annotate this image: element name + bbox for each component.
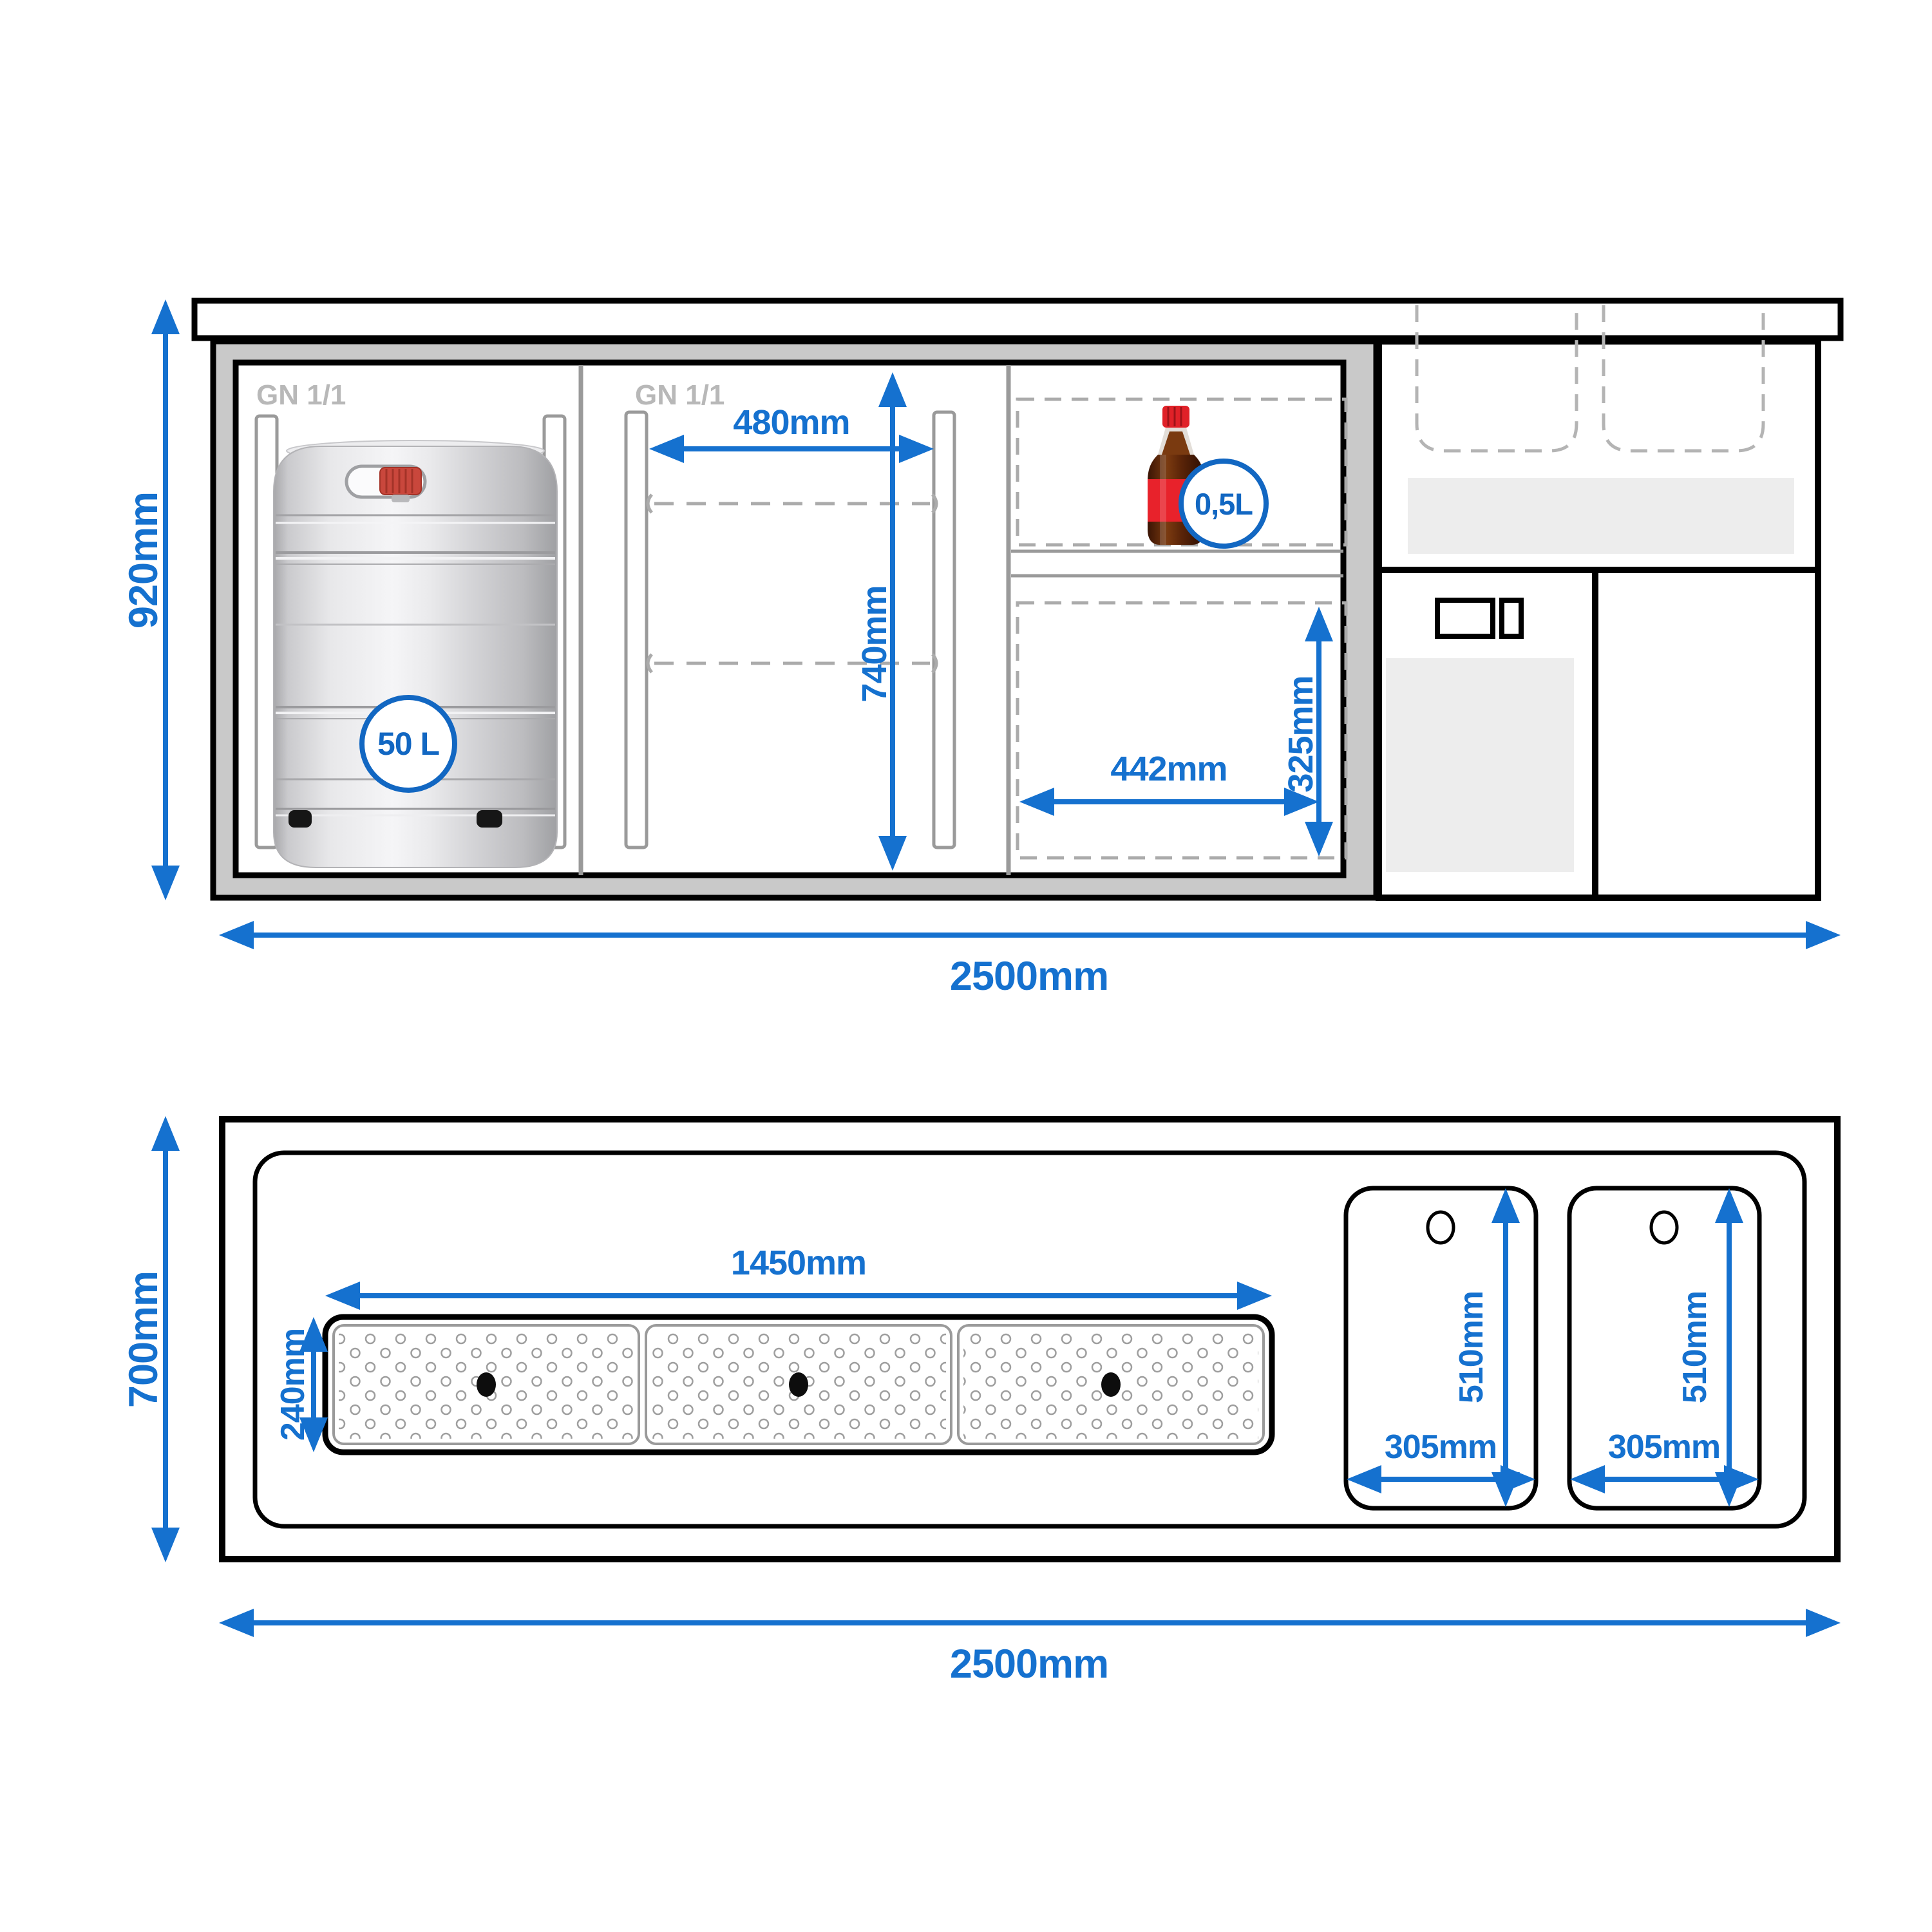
gn-label-left: GN 1/1 bbox=[256, 379, 346, 411]
keg-cooler-dimension-diagram: GN 1/1 GN 1/1 bbox=[0, 0, 1932, 1932]
faucet-hole bbox=[1651, 1212, 1677, 1243]
top-width-label: 2500mm bbox=[950, 1642, 1108, 1687]
top-depth-label: 700mm bbox=[121, 1271, 166, 1408]
control-display bbox=[1437, 600, 1493, 636]
dimension-700: 700mm bbox=[121, 1116, 180, 1562]
sink-unit-front bbox=[1379, 305, 1818, 898]
sink1-width-label: 305mm bbox=[1385, 1428, 1497, 1466]
drain-hole bbox=[477, 1372, 496, 1397]
drain-hole bbox=[1101, 1372, 1121, 1397]
bottle-capacity-badge: 0,5L bbox=[1181, 461, 1266, 546]
control-switch bbox=[1502, 600, 1521, 636]
gn-label-middle: GN 1/1 bbox=[635, 379, 724, 411]
drip-tray-depth-label: 240mm bbox=[274, 1329, 312, 1441]
diagram-canvas: GN 1/1 GN 1/1 bbox=[0, 0, 1932, 1932]
inner-height-label: 740mm bbox=[855, 585, 894, 702]
dimension-920: 920mm bbox=[121, 299, 180, 900]
dimension-2500-front: 2500mm bbox=[219, 921, 1841, 999]
sink2-width-label: 305mm bbox=[1608, 1428, 1720, 1466]
sink2-depth-label: 510mm bbox=[1676, 1291, 1714, 1403]
front-view: GN 1/1 GN 1/1 bbox=[121, 299, 1841, 999]
drip-tray bbox=[325, 1317, 1272, 1452]
keg-capacity-badge: 50 L bbox=[362, 697, 455, 790]
front-height-label: 920mm bbox=[121, 492, 166, 629]
drip-tray-width-label: 1450mm bbox=[731, 1244, 866, 1282]
top-view: 1450mm 240mm 510mm 305mm bbox=[121, 1116, 1841, 1687]
lower-shelf-height-label: 325mm bbox=[1282, 676, 1320, 792]
inner-width-label: 480mm bbox=[733, 403, 849, 442]
cabinet-door-panel bbox=[1386, 658, 1574, 872]
drain-hole bbox=[789, 1372, 808, 1397]
keg-capacity-label: 50 L bbox=[377, 726, 439, 762]
keg-illustration: 50 L bbox=[274, 440, 557, 867]
front-width-label: 2500mm bbox=[950, 954, 1108, 999]
drip-tray-panel-3 bbox=[958, 1325, 1264, 1444]
sink-plan-2: 510mm 305mm bbox=[1569, 1188, 1759, 1508]
drip-tray-panel-1 bbox=[334, 1325, 639, 1444]
sink1-depth-label: 510mm bbox=[1453, 1291, 1490, 1403]
front-countertop bbox=[194, 301, 1841, 338]
bottle-capacity-label: 0,5L bbox=[1195, 487, 1253, 521]
dimension-2500-plan: 2500mm bbox=[219, 1609, 1841, 1687]
sink-plan-1: 510mm 305mm bbox=[1346, 1188, 1536, 1508]
splash-panel bbox=[1408, 478, 1794, 554]
faucet-hole bbox=[1428, 1212, 1454, 1243]
drip-tray-panel-2 bbox=[646, 1325, 951, 1444]
lower-shelf-width-label: 442mm bbox=[1110, 750, 1227, 788]
